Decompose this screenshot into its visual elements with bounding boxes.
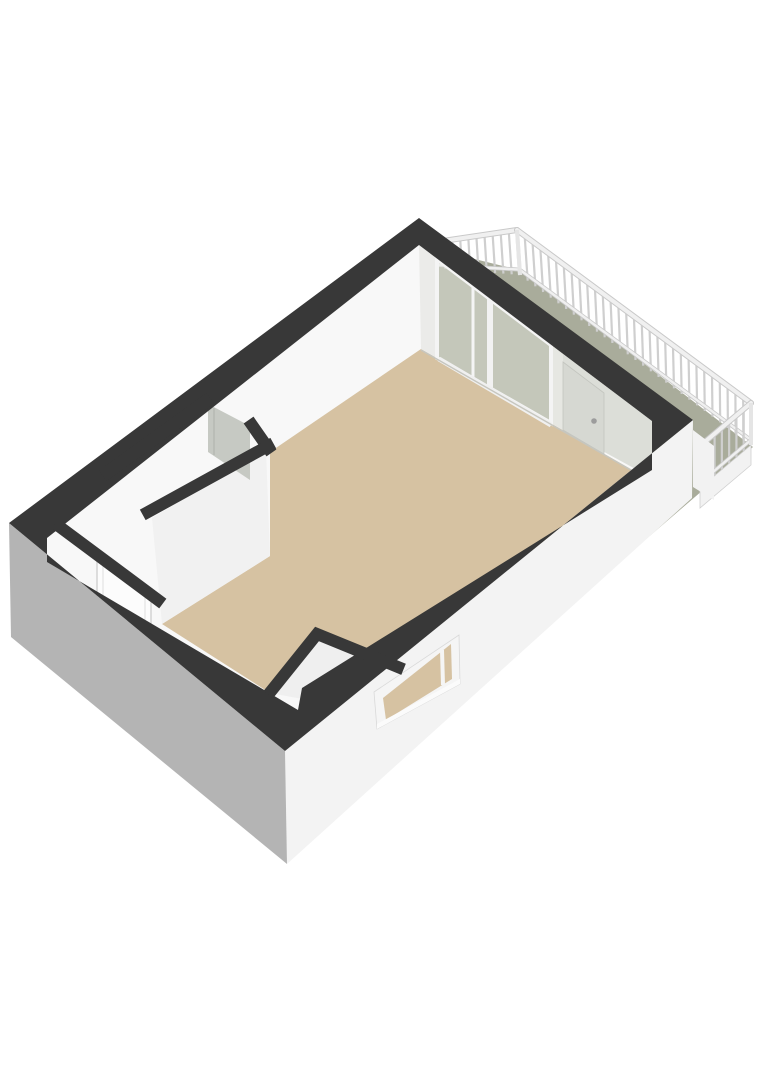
floorplan-canvas xyxy=(0,0,768,1086)
floorplan-3d xyxy=(0,0,768,1086)
window-mullion xyxy=(442,650,443,685)
balcony-door-handle xyxy=(591,418,597,424)
glazing-wall-corner-pillar xyxy=(419,245,437,358)
